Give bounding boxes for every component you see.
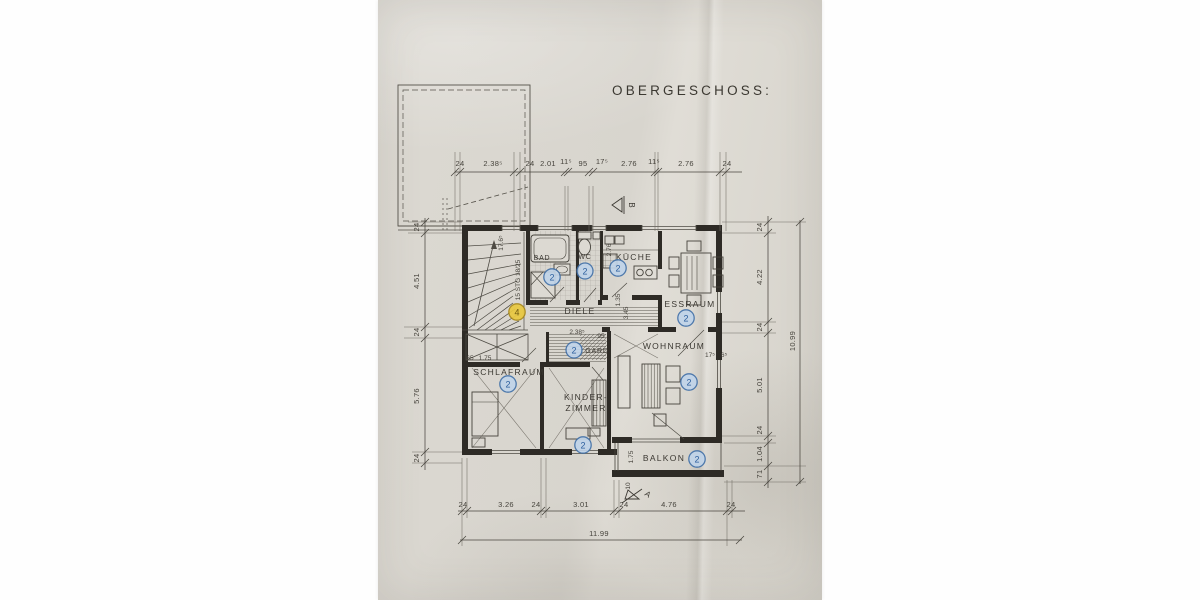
dimension-labels-left: 24 4.51 24 5.76 24 [412, 223, 421, 463]
svg-text:A: A [643, 489, 653, 500]
badge-wohnraum: 2 [681, 374, 697, 390]
badge-gard: 2 [566, 342, 582, 358]
svg-text:71: 71 [755, 470, 764, 479]
svg-text:4.51: 4.51 [412, 273, 421, 289]
scanned-floor-plan-page: OBERGESCHOSS: [0, 0, 1200, 600]
svg-text:2: 2 [683, 314, 688, 324]
badge-schlafraum: 2 [500, 376, 516, 392]
dimension-labels-right: 24 4.22 24 5.01 24 1.04 71 10.99 [755, 223, 797, 479]
dimension-labels-top: 24 2.38⁵ 24 2.01 11⁵ 95 17⁵ 2.76 11⁵ 2.7… [456, 157, 732, 168]
svg-text:2: 2 [505, 380, 510, 390]
svg-text:3.01: 3.01 [573, 500, 589, 509]
svg-text:B: B [627, 202, 636, 207]
svg-text:24: 24 [727, 500, 736, 509]
stair-count-note: 15 STG 18/25 [515, 259, 522, 300]
room-label-diele: DIELE [564, 306, 595, 316]
svg-text:2: 2 [686, 378, 691, 388]
svg-text:24: 24 [532, 500, 541, 509]
svg-text:4.22: 4.22 [755, 269, 764, 285]
svg-text:17.6⁵: 17.6⁵ [498, 235, 505, 251]
room-label-bad: BAD [534, 255, 551, 262]
room-label-kinderzimmer-2: ZIMMER [565, 403, 606, 413]
svg-text:2: 2 [582, 267, 587, 277]
svg-text:1.35: 1.35 [615, 293, 622, 306]
page-title: OBERGESCHOSS: [612, 83, 772, 98]
svg-text:24: 24 [412, 454, 421, 463]
svg-text:2: 2 [694, 455, 699, 465]
room-label-kinderzimmer-1: KINDER- [564, 392, 608, 402]
svg-text:5.01: 5.01 [755, 377, 764, 393]
svg-text:24: 24 [723, 159, 732, 168]
svg-text:1.75: 1.75 [479, 355, 492, 362]
furniture-wohnraum [618, 356, 680, 426]
svg-text:95: 95 [579, 159, 588, 168]
furniture-schlafraum [472, 392, 498, 447]
room-label-essraum: ESSRAUM [664, 299, 715, 309]
furniture-essraum [669, 241, 723, 305]
svg-text:2: 2 [580, 441, 585, 451]
svg-text:24: 24 [459, 500, 468, 509]
svg-text:17⁵: 17⁵ [596, 157, 608, 166]
svg-text:11⁵: 11⁵ [648, 157, 660, 166]
badge-wc: 2 [577, 263, 593, 279]
svg-text:11⁵: 11⁵ [560, 157, 572, 166]
svg-text:24: 24 [755, 223, 764, 232]
svg-text:5.76: 5.76 [412, 388, 421, 404]
badge-kueche: 2 [610, 260, 626, 276]
svg-text:24: 24 [456, 159, 465, 168]
svg-text:10.99: 10.99 [788, 331, 797, 351]
svg-text:2.76: 2.76 [606, 243, 613, 256]
svg-text:24: 24 [412, 328, 421, 337]
svg-text:1.04: 1.04 [755, 446, 764, 462]
room-label-wohnraum: WOHNRAUM [643, 341, 705, 351]
svg-text:1.75: 1.75 [628, 450, 635, 463]
svg-text:6⁵: 6⁵ [721, 352, 728, 359]
svg-text:2: 2 [571, 346, 576, 356]
dimension-labels-bottom: 24 3.26 24 3.01 24 4.76 24 11.99 [459, 500, 736, 538]
svg-text:17⁵: 17⁵ [705, 352, 715, 359]
badge-kinderzimmer: 2 [575, 437, 591, 453]
svg-text:2.76: 2.76 [621, 159, 637, 168]
svg-text:2: 2 [549, 273, 554, 283]
svg-text:4.76: 4.76 [661, 500, 677, 509]
badge-treppenhaus: 4 [509, 304, 525, 320]
svg-text:24: 24 [526, 159, 535, 168]
svg-text:24: 24 [755, 426, 764, 435]
svg-text:2.38⁵: 2.38⁵ [569, 329, 585, 336]
svg-text:10: 10 [625, 482, 632, 490]
svg-text:24: 24 [755, 323, 764, 332]
badge-essraum: 2 [678, 310, 694, 326]
section-marker-b: B [612, 196, 636, 214]
badge-balkon: 2 [689, 451, 705, 467]
svg-text:2: 2 [615, 264, 620, 274]
svg-text:2.01: 2.01 [540, 159, 556, 168]
svg-text:65: 65 [466, 355, 474, 362]
room-label-balkon: BALKON [643, 453, 685, 463]
svg-text:3.45: 3.45 [623, 306, 630, 319]
svg-text:3.26: 3.26 [498, 500, 514, 509]
badge-bad: 2 [544, 269, 560, 285]
svg-text:24: 24 [412, 223, 421, 232]
svg-text:2.38⁵: 2.38⁵ [483, 159, 502, 168]
svg-text:95: 95 [597, 333, 605, 340]
svg-text:2.76: 2.76 [678, 159, 694, 168]
wardrobe [466, 334, 528, 360]
svg-text:11.99: 11.99 [589, 529, 609, 538]
svg-text:4: 4 [514, 308, 519, 318]
room-label-wc: WC [578, 254, 591, 261]
floor-plan-drawing: OBERGESCHOSS: [0, 0, 1200, 600]
room-label-gard: GARD [585, 348, 608, 355]
roof-outline [398, 85, 530, 231]
